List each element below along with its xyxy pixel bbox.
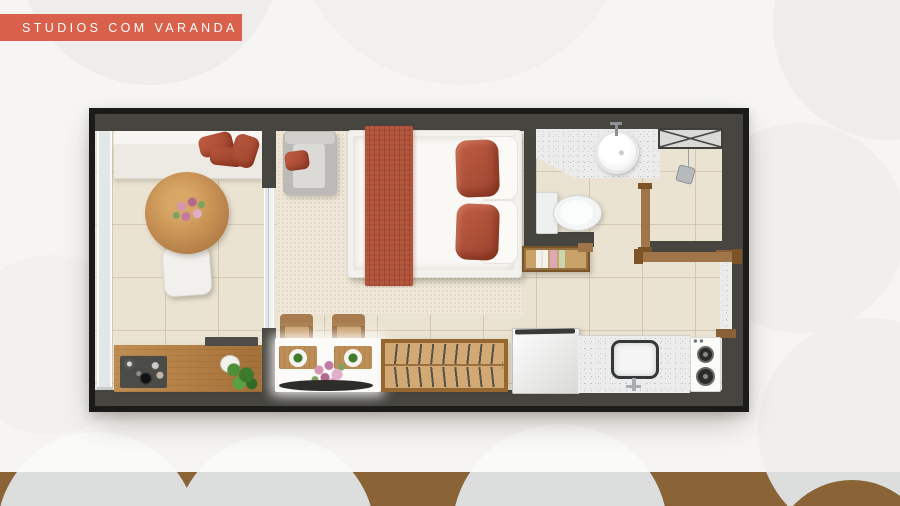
console-books xyxy=(526,250,586,268)
counter-ledge xyxy=(205,337,258,346)
band-circle xyxy=(0,472,197,506)
frame-cap xyxy=(638,183,652,189)
table-flowers xyxy=(167,192,209,228)
shower-door-track xyxy=(637,252,741,262)
bottom-band xyxy=(0,472,900,506)
washbasin xyxy=(595,130,639,174)
refrigerator xyxy=(512,328,580,394)
track-cap xyxy=(732,249,742,264)
fridge-handle xyxy=(515,328,575,334)
sink-faucet-handle xyxy=(626,385,641,388)
cooktop-burner xyxy=(697,346,714,363)
track-cap xyxy=(634,249,643,264)
armchair-back xyxy=(285,132,335,144)
basin-faucet-stem xyxy=(615,124,618,136)
decorative-circle xyxy=(773,0,900,140)
serving-tray xyxy=(279,380,373,391)
shaft-x-icon xyxy=(660,130,721,147)
door-jamb xyxy=(578,243,593,252)
bed-blanket xyxy=(365,126,413,286)
cooktop-knobs xyxy=(693,339,705,343)
balcony-railing xyxy=(97,120,112,392)
partition-wall-lower xyxy=(262,328,276,406)
sliding-door-track xyxy=(264,188,274,328)
right-ledge xyxy=(720,258,732,330)
basin-faucet-handle xyxy=(610,122,622,125)
wall-top xyxy=(95,114,743,131)
floor-plan xyxy=(89,108,749,412)
hanger-row-top xyxy=(386,344,503,365)
decorative-circle xyxy=(290,0,630,85)
shower-glass-frame xyxy=(641,186,650,248)
partition-wall-upper xyxy=(262,114,276,188)
toilet-seat xyxy=(560,200,593,225)
cooktop-burner xyxy=(696,367,715,386)
band-circle xyxy=(452,472,668,506)
band-circle xyxy=(175,472,375,506)
potted-plant xyxy=(223,360,259,393)
hanger-row-bottom xyxy=(386,367,503,387)
shower-cord xyxy=(688,149,689,168)
banner-label: STUDIOS COM VARANDA xyxy=(22,21,238,35)
bed-pillow-red xyxy=(455,139,500,197)
bed-pillow-red xyxy=(455,203,500,260)
title-banner: STUDIOS COM VARANDA xyxy=(0,14,242,41)
bathroom-wall-left xyxy=(524,114,536,247)
kitchen-sink xyxy=(611,340,659,379)
ventilation-shaft xyxy=(658,128,723,149)
wardrobe-divider xyxy=(385,364,504,366)
dinner-plate xyxy=(289,349,307,367)
decorative-circle xyxy=(20,0,280,85)
barbecue-tray xyxy=(120,356,167,388)
armchair-cushion xyxy=(284,149,310,171)
page: STUDIOS COM VARANDA xyxy=(0,0,900,506)
